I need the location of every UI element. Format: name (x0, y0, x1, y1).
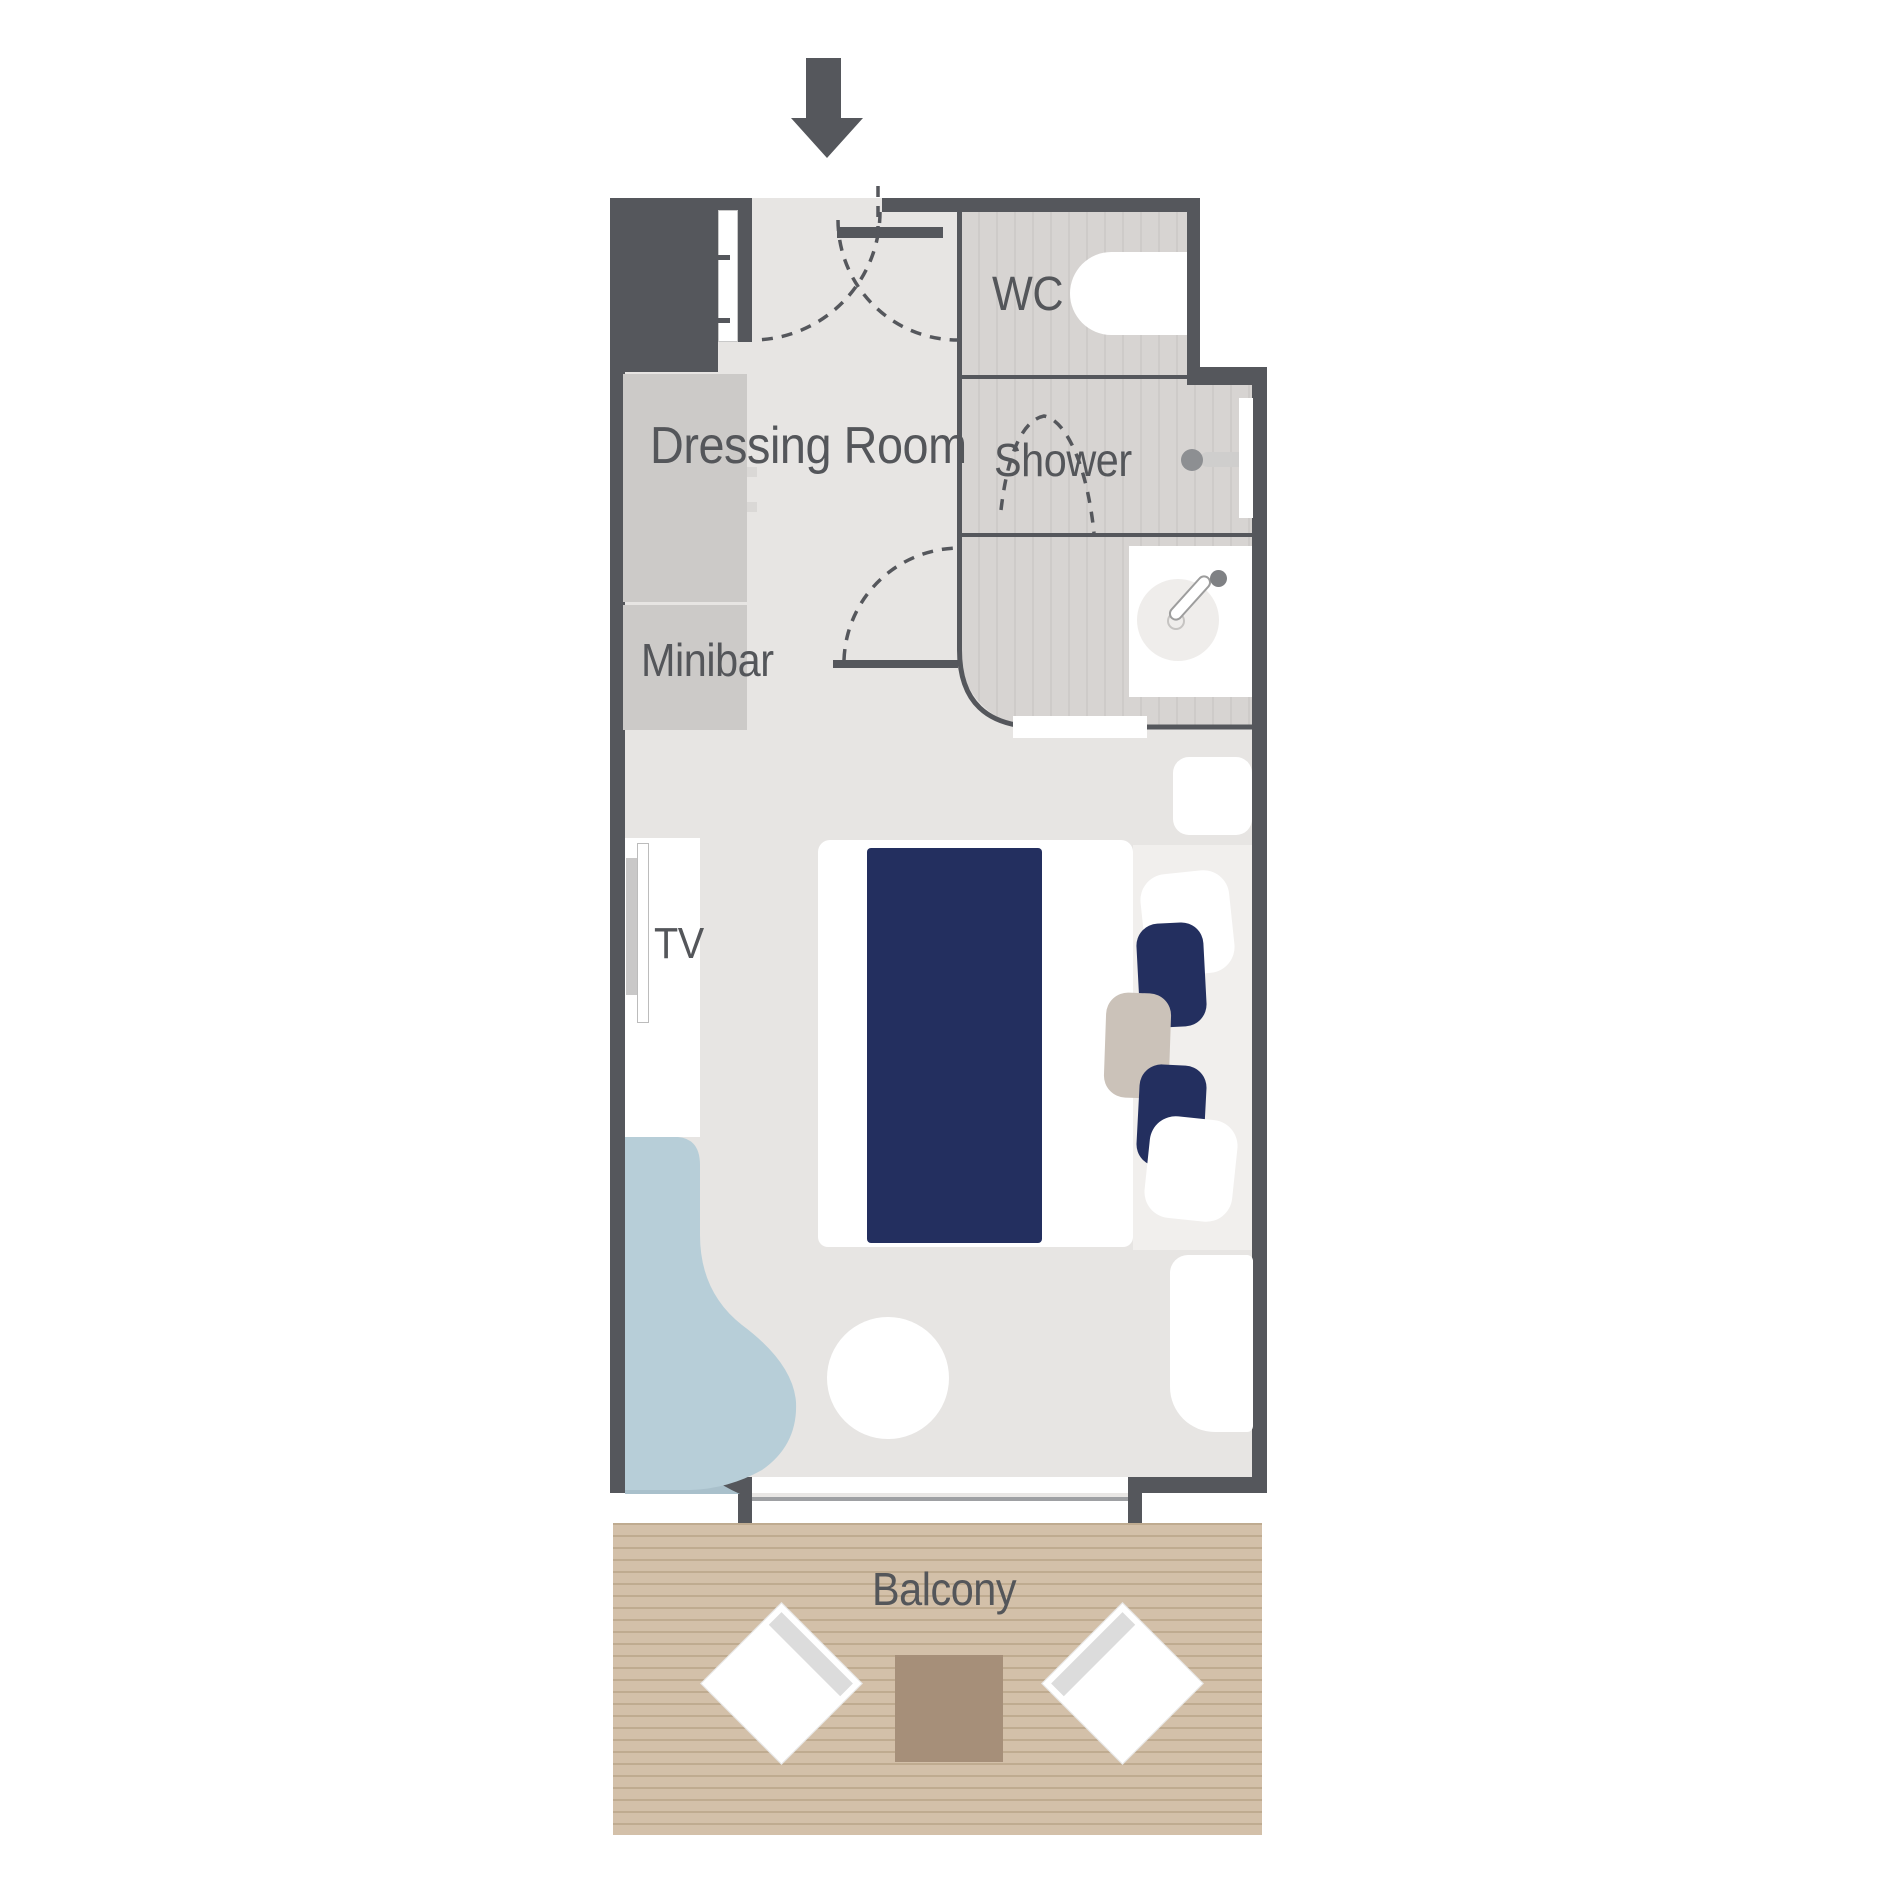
balcony-table (895, 1655, 1003, 1762)
dressing-room-label: Dressing Room (650, 420, 967, 472)
window-bench (1170, 1255, 1253, 1432)
floorplan-canvas: Dressing Room Minibar TV WC Shower Balco… (0, 0, 1900, 1900)
nightstand (1173, 757, 1252, 835)
closet-hinge-tick-2 (714, 318, 730, 323)
tv-icon (637, 843, 649, 1023)
entrance-door-swing-left (753, 212, 880, 340)
chaise-longue (625, 1137, 796, 1490)
wc-label: WC (992, 271, 1063, 319)
entrance-arrow-icon (791, 58, 863, 158)
armchair-shell-2 (1142, 1114, 1240, 1225)
bathroom-door-swing (844, 548, 958, 660)
bathroom-door-handle (1124, 611, 1129, 631)
toilet-icon (1070, 252, 1187, 335)
wardrobe-handle-2 (747, 502, 757, 512)
wardrobe-cabinet (623, 374, 747, 602)
shower-head-icon (1181, 449, 1203, 471)
shower-label: Shower (994, 437, 1132, 483)
bed-duvet (867, 848, 1042, 1243)
bathroom-doorway (1013, 716, 1147, 738)
tv-label: TV (654, 922, 704, 966)
faucet-knob (1210, 570, 1227, 587)
balcony-label: Balcony (872, 1566, 1016, 1612)
minibar-label: Minibar (641, 637, 774, 683)
entrance-door-swing-right (838, 220, 958, 340)
round-stool (827, 1317, 949, 1439)
shower-panel (1239, 398, 1253, 518)
closet-hinge-tick-1 (714, 255, 730, 260)
